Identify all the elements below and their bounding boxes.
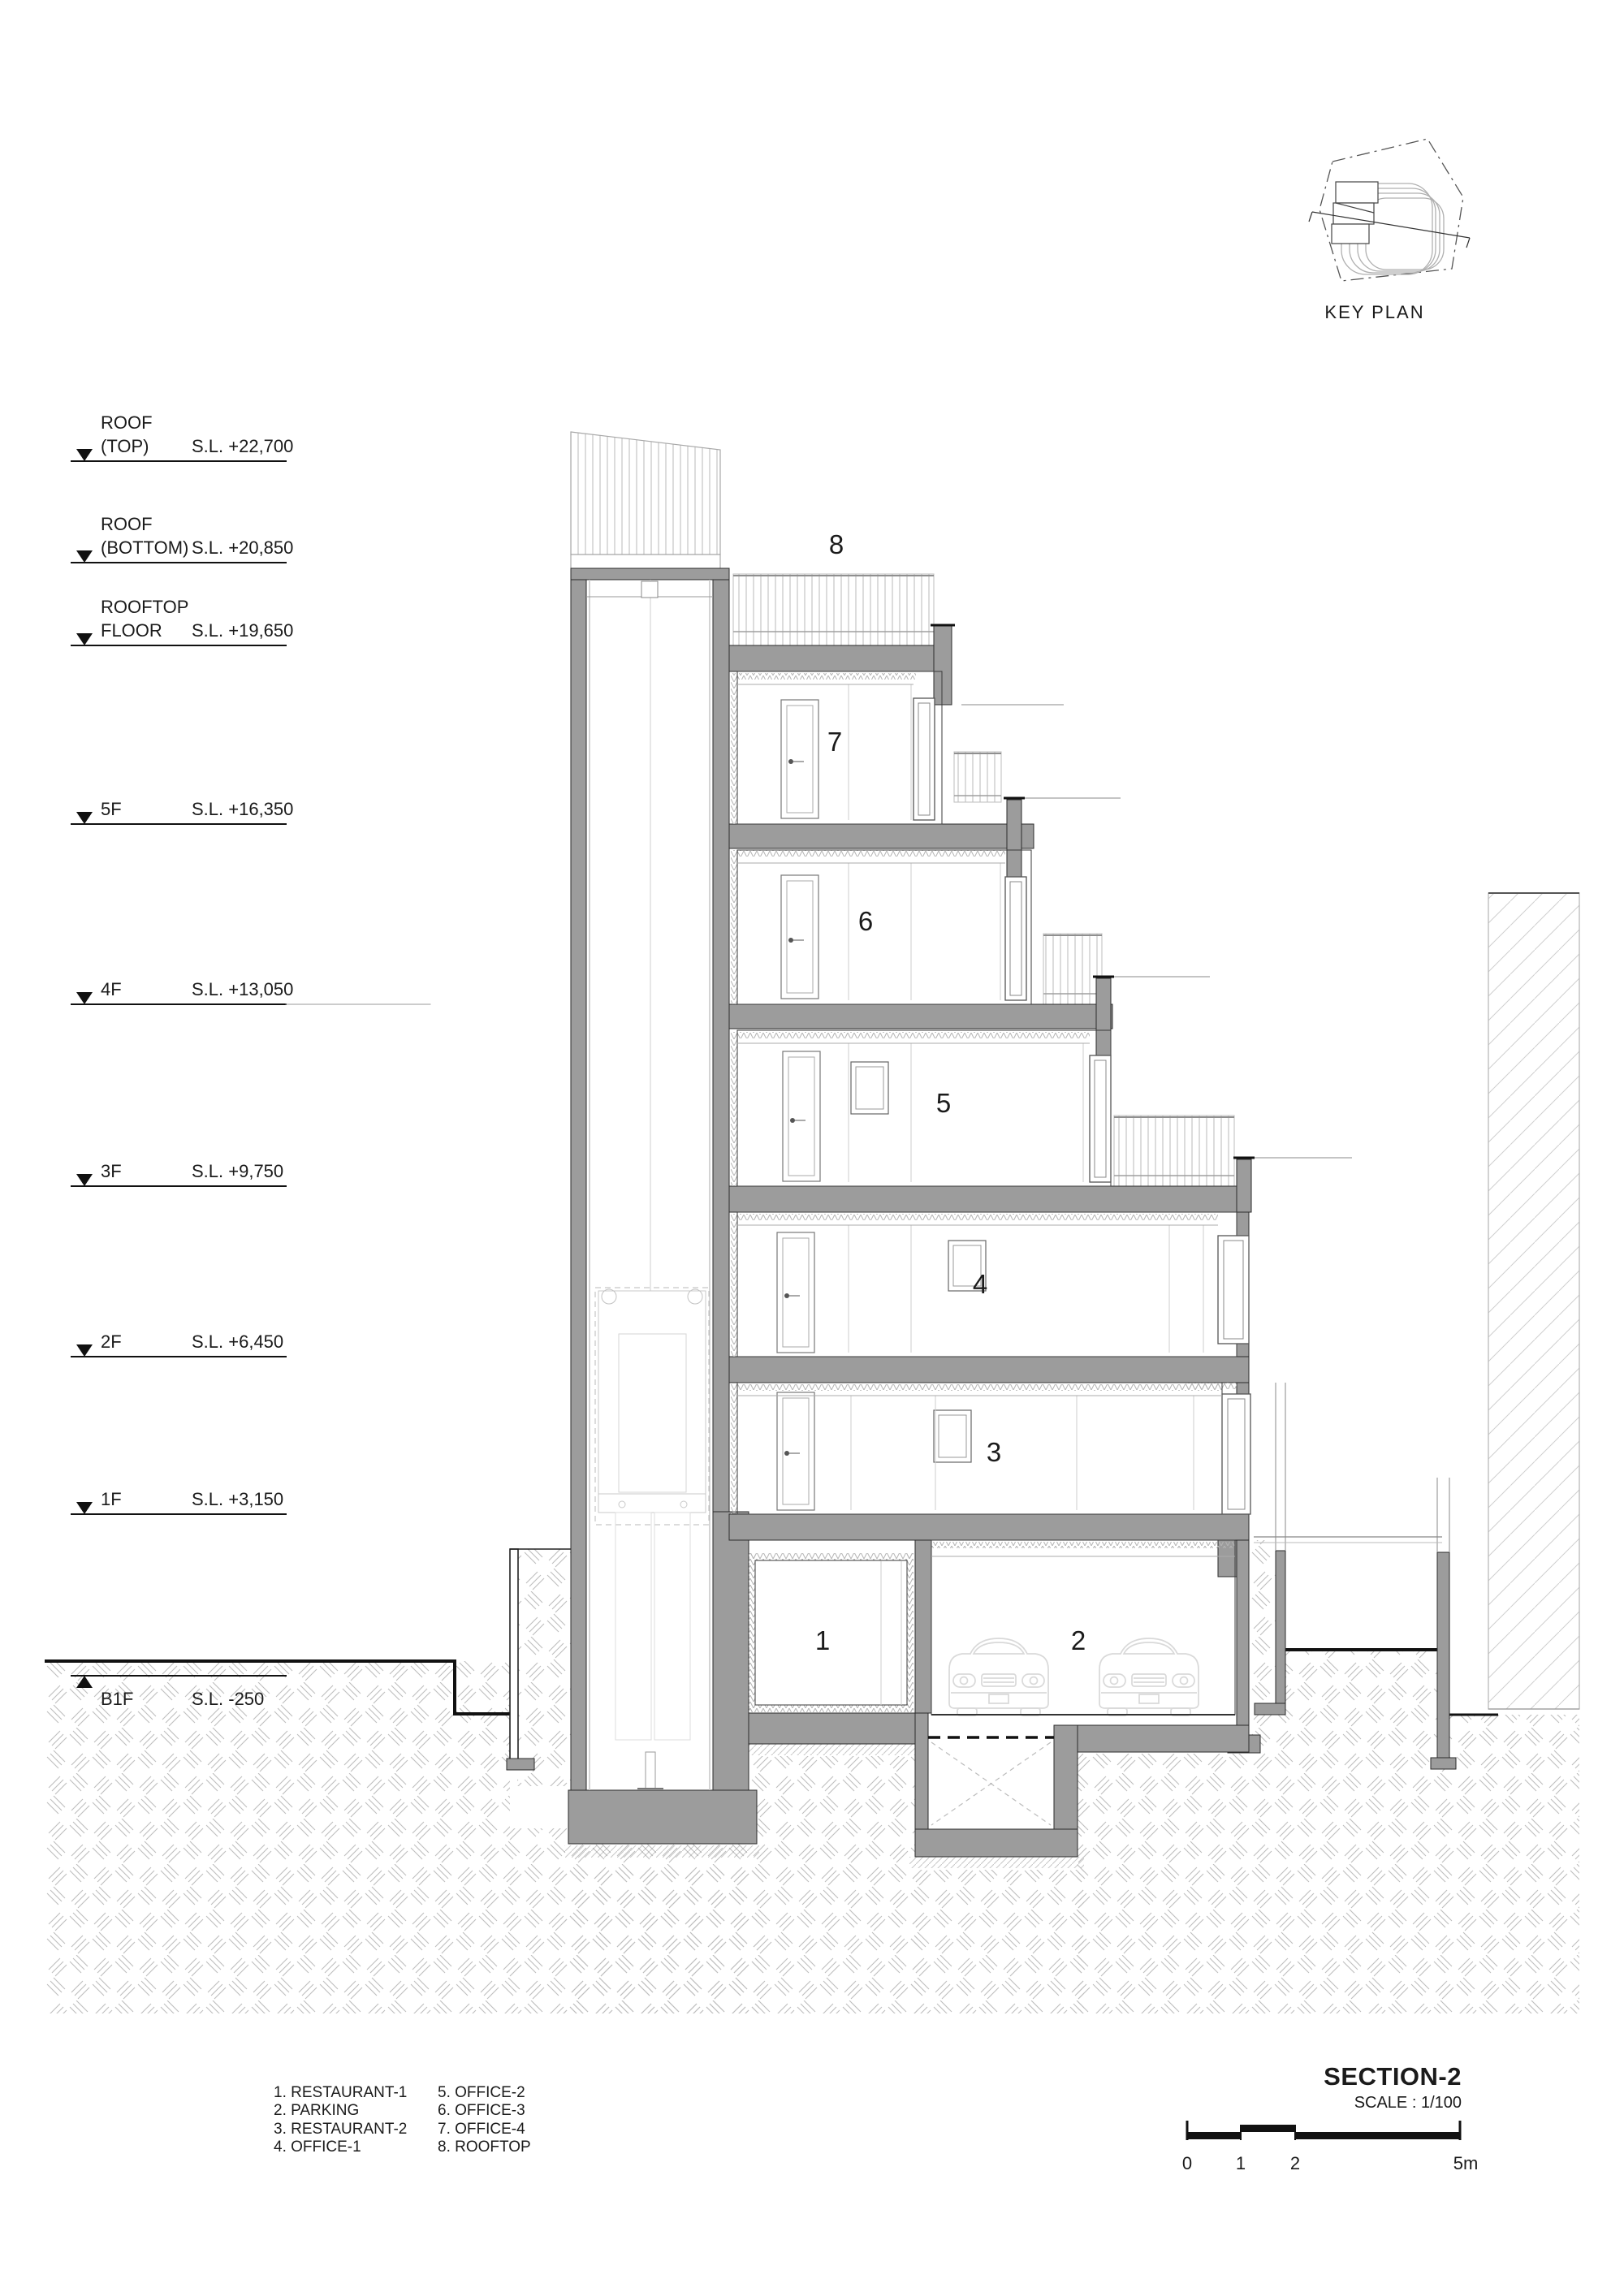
door-office3 [781,875,818,999]
balcony-railing-4f [1043,934,1102,1004]
key-plan: KEY PLAN [1309,139,1470,322]
balcony-railing-5f [954,752,1001,802]
parapet-caps [931,625,1352,1158]
level-name: 4F [101,979,122,999]
legend-item: 5. OFFICE-2 [438,2084,525,2101]
level-elevation: S.L. +16,350 [192,799,293,819]
level-marker-roof-bottom: ROOF (BOTTOM) S.L. +20,850 [71,514,293,563]
legend-item: 2. PARKING [274,2102,359,2119]
level-elevation: S.L. +13,050 [192,979,293,999]
window-5f [914,698,935,820]
level-elevation: S.L. +6,450 [192,1331,283,1352]
level-triangle-icon [76,550,93,563]
level-elevation: S.L. +19,650 [192,620,293,641]
door-restaurant2 [777,1392,814,1510]
room-label-office4: 7 [827,727,842,757]
key-plan-core [1332,182,1378,244]
level-name: 5F [101,799,122,819]
window-4f [1005,877,1026,1000]
level-triangle-icon [76,633,93,645]
legend-item: 8. ROOFTOP [438,2138,531,2156]
level-elevation: S.L. +22,700 [192,436,293,456]
section-scale: SCALE : 1/100 [1354,2094,1462,2112]
level-name: B1F [101,1689,133,1709]
level-elevation: S.L. -250 [192,1689,264,1709]
title-block: SECTION-2 SCALE : 1/100 [1324,2062,1462,2112]
level-marker-rooftop-floor: ROOFTOP FLOOR S.L. +19,650 [71,597,293,645]
level-elevation: S.L. +20,850 [192,537,293,558]
legend-item: 3. RESTAURANT-2 [274,2121,407,2138]
room-label-restaurant2: 3 [987,1437,1001,1467]
level-name2: FLOOR [101,620,162,641]
car-2 [1099,1638,1199,1716]
neighbor-building [1488,893,1579,1709]
level-elevation: S.L. +9,750 [192,1161,283,1181]
level-marker-roof-top: ROOF (TOP) S.L. +22,700 [71,412,293,461]
door-office1 [777,1232,814,1353]
level-marker-5f: 5F S.L. +16,350 [71,799,293,824]
room-label-rooftop: 8 [829,529,844,559]
level-elevation: S.L. +3,150 [192,1489,283,1509]
elevator-car [595,1288,709,1740]
rooftop-screen [571,432,720,568]
level-name2: (BOTTOM) [101,537,188,558]
graphic-scale-bar: 0 1 2 5m [1182,2121,1478,2173]
level-triangle-icon [76,1344,93,1357]
opening-3f [851,1062,888,1114]
legend-item: 6. OFFICE-3 [438,2102,525,2119]
terrace-railing-3f [1114,1116,1234,1186]
level-name: 3F [101,1161,122,1181]
scale-tick-0: 0 [1182,2153,1192,2173]
section-title: SECTION-2 [1324,2062,1462,2091]
window-1f [1222,1394,1250,1514]
level-triangle-icon [76,1502,93,1514]
window-2f [1218,1236,1249,1344]
architectural-section-sheet: 1 2 3 4 5 6 7 8 ROOF (TOP) S.L. +22,700 … [0,0,1624,2296]
rooftop-railing [733,574,934,645]
level-marker-2f: 2F S.L. +6,450 [71,1331,286,1357]
elevator-shaft-interior [586,580,713,1790]
scale-tick-1: 1 [1236,2153,1246,2173]
level-marker-1f: 1F S.L. +3,150 [71,1489,286,1514]
level-marker-4f: 4F S.L. +13,050 [71,979,430,1004]
room-legend: 1. RESTAURANT-1 2. PARKING 3. RESTAURANT… [274,2084,531,2156]
scale-tick-5m: 5m [1453,2153,1479,2173]
key-plan-title: KEY PLAN [1324,302,1424,322]
level-marker-3f: 3F S.L. +9,750 [71,1161,286,1186]
level-triangle-icon [76,992,93,1004]
level-name: 2F [101,1331,122,1352]
section-drawing-canvas: 1 2 3 4 5 6 7 8 ROOF (TOP) S.L. +22,700 … [0,0,1624,2296]
level-triangle-icon [76,449,93,461]
room-label-office3: 6 [858,906,873,936]
room-label-office2: 5 [936,1088,951,1118]
scale-tick-2: 2 [1290,2153,1300,2173]
car-1 [949,1638,1048,1716]
opening-1f [934,1410,971,1462]
legend-item: 7. OFFICE-4 [438,2121,525,2138]
door-office4 [781,700,818,818]
door-office2 [783,1051,820,1181]
windows [914,698,1250,1514]
legend-item: 4. OFFICE-1 [274,2138,361,2156]
level-name: ROOFTOP [101,597,188,617]
level-name: 1F [101,1489,122,1509]
lift-pit [928,1737,1054,1825]
room-label-restaurant1: 1 [815,1625,830,1655]
level-name2: (TOP) [101,436,149,456]
wall-openings [851,1062,986,1462]
earth-hatch-region [45,1540,1579,2013]
legend-item: 1. RESTAURANT-1 [274,2084,407,2101]
level-triangle-icon [76,1174,93,1186]
level-triangle-icon [76,812,93,824]
level-name: ROOF [101,514,153,534]
level-markers: ROOF (TOP) S.L. +22,700 ROOF (BOTTOM) S.… [71,412,430,1709]
room-label-parking: 2 [1071,1625,1086,1655]
room-label-office1: 4 [973,1269,987,1299]
window-3f [1090,1055,1111,1182]
level-name: ROOF [101,412,153,433]
